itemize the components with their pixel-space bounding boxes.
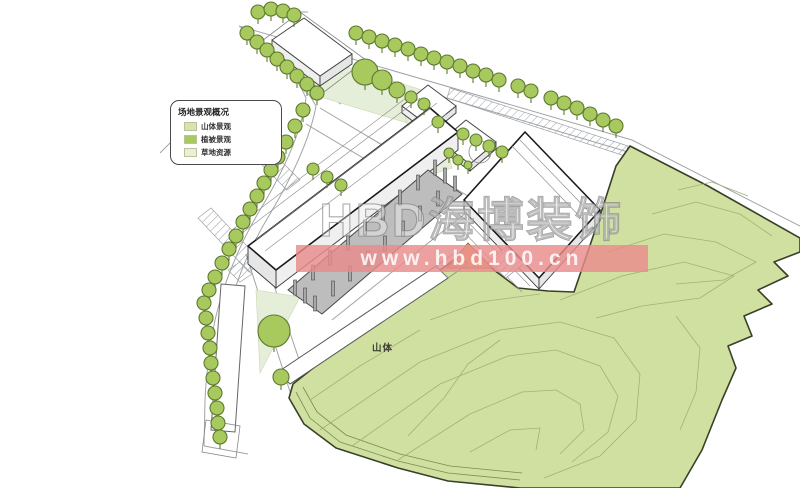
watermark: HBD海博装饰 www.hbd100.cn (296, 194, 648, 272)
watermark-brand: HBD海博装饰 (320, 194, 625, 246)
legend-panel: 场地景观概况 山体景观 植被景观 草地资源 (170, 100, 282, 165)
mountain-label: 山体 (372, 342, 393, 354)
legend-item-grass: 草地资源 (184, 147, 274, 158)
legend-swatch-vegetation (184, 135, 197, 144)
site-plan: 山体 HBD海博装饰 www.hbd100.cn 场地景观概况 山体景观 植被景… (0, 0, 800, 488)
legend-item-mountain: 山体景观 (184, 121, 274, 132)
site-plan-canvas: 山体 HBD海博装饰 www.hbd100.cn (0, 0, 800, 488)
legend-swatch-grass (184, 148, 197, 157)
watermark-url: www.hbd100.cn (360, 247, 584, 270)
legend-label-mountain: 山体景观 (201, 121, 231, 132)
legend-item-vegetation: 植被景观 (184, 134, 274, 145)
legend-title: 场地景观概况 (178, 106, 274, 118)
legend-label-grass: 草地资源 (201, 147, 231, 158)
legend-label-vegetation: 植被景观 (201, 134, 231, 145)
legend-swatch-mountain (184, 122, 197, 131)
